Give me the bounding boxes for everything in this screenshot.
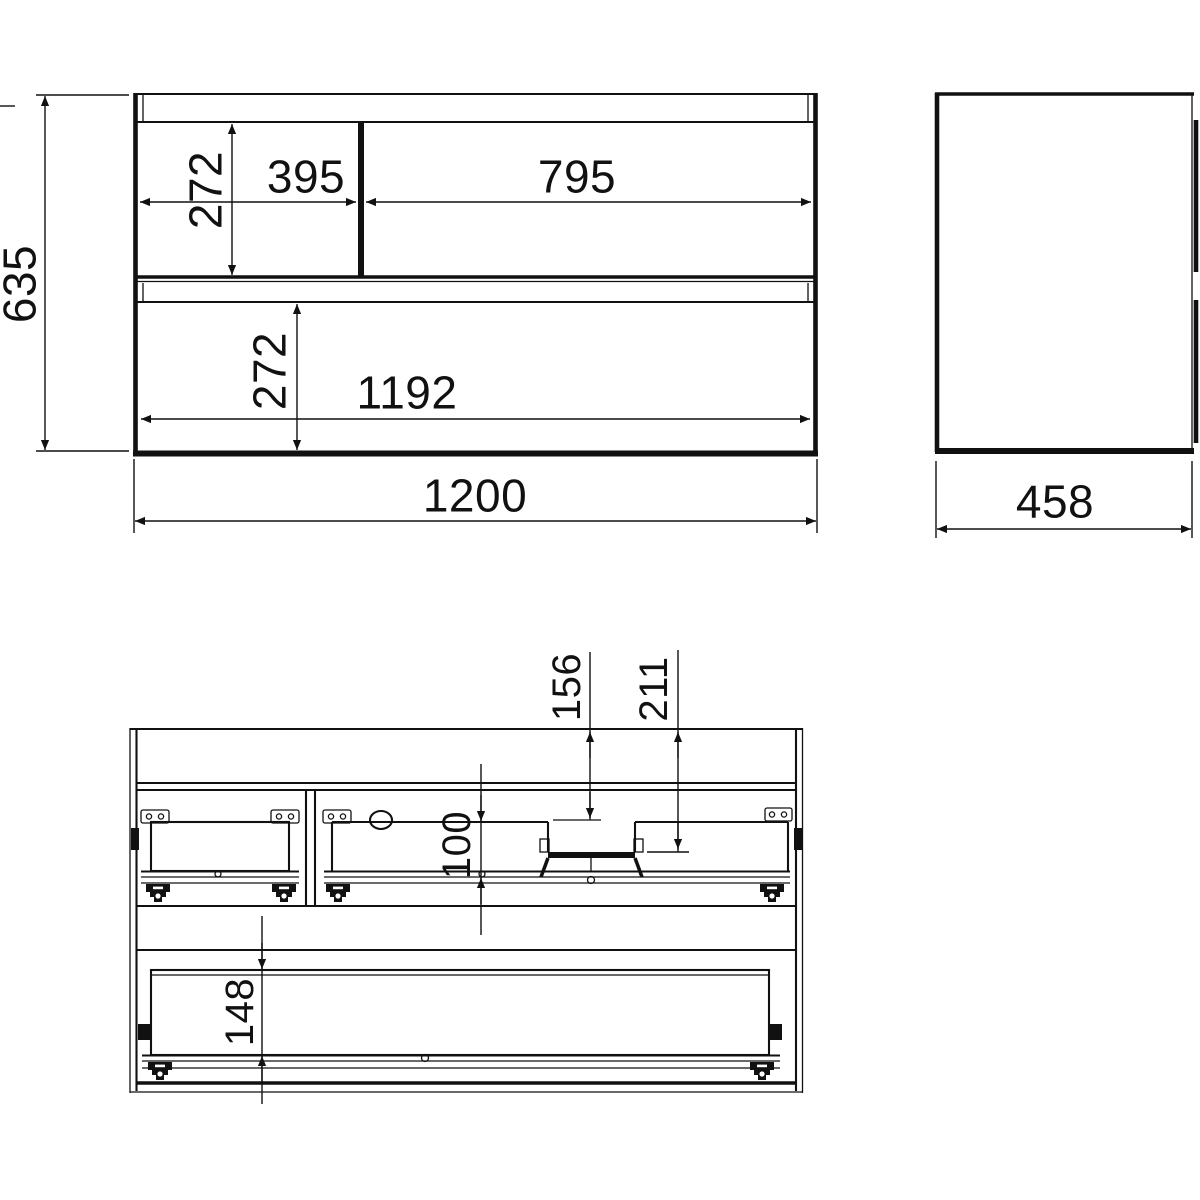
slide-roller [326, 884, 350, 902]
dim-front-bottom-drawer-height: 272 [244, 304, 297, 450]
dim-section-recess-offset-front: 156 [545, 652, 590, 820]
bracket-hole [158, 814, 163, 819]
slide-roller [148, 1062, 172, 1080]
side-depth-label: 458 [1016, 476, 1094, 528]
cabinet-dimension-drawing: 635 395 795 272 272 1192 1200 [0, 0, 1200, 1200]
slide-hardware [138, 1024, 150, 1040]
cable-grommet [370, 811, 392, 829]
dim-section-bottom-drawer-inner-depth: 148 [218, 916, 262, 1104]
front-cabinet-outline [133, 93, 818, 454]
slide-roller [272, 884, 296, 902]
side-cabinet-outline [935, 93, 1196, 452]
section-recess-offset-front-label: 156 [545, 653, 589, 721]
section-left-drawer-box [141, 810, 299, 902]
bracket-hole [146, 814, 151, 819]
front-left-drawer-width-label: 395 [267, 151, 345, 203]
section-view: 156 211 100 148 [130, 650, 803, 1104]
sink-recess-right-side [635, 858, 642, 877]
front-overall-height-label: 635 [0, 245, 46, 323]
dim-front-overall-height: 635 [0, 95, 129, 451]
front-bottom-drawer-height-label: 272 [244, 332, 296, 410]
front-overall-width-label: 1200 [423, 470, 527, 522]
section-recess-offset-back-label: 211 [632, 656, 676, 721]
dim-front-top-drawer-height: 272 [180, 124, 232, 275]
bracket-hole [781, 812, 786, 817]
bracket-hole [769, 812, 774, 817]
section-right-drawer-box [323, 808, 792, 902]
dim-front-right-drawer-width: 795 [366, 151, 811, 203]
side-view: 458 [935, 93, 1196, 538]
section-top-drawer-inner-depth-label: 100 [435, 811, 479, 879]
front-view: 635 395 795 272 272 1192 1200 [0, 93, 818, 533]
slide-roller [146, 884, 170, 902]
section-bottom-drawer-inner-depth-label: 148 [218, 978, 262, 1046]
drawer-box-body [151, 822, 289, 871]
sink-recess-left-side [541, 858, 548, 877]
bracket-hole [288, 814, 293, 819]
dim-front-inner-width: 1192 [141, 367, 810, 419]
left-wall-slide-hardware [131, 828, 139, 850]
slide-roller [750, 1062, 774, 1080]
slide-roller [760, 884, 784, 902]
dim-side-depth: 458 [936, 461, 1192, 538]
front-right-drawer-width-label: 795 [538, 151, 616, 203]
dim-front-overall-width: 1200 [134, 459, 817, 533]
right-wall-slide-hardware [794, 828, 802, 850]
front-top-drawer-height-label: 272 [180, 151, 232, 229]
bracket-hole [328, 814, 333, 819]
front-inner-width-label: 1192 [357, 367, 458, 419]
bracket-hole [340, 814, 345, 819]
slide-hardware [770, 1024, 782, 1040]
technical-drawing-page: 635 395 795 272 272 1192 1200 [0, 0, 1200, 1200]
bracket-hole [276, 814, 281, 819]
dim-front-left-drawer-width: 395 [140, 151, 356, 203]
